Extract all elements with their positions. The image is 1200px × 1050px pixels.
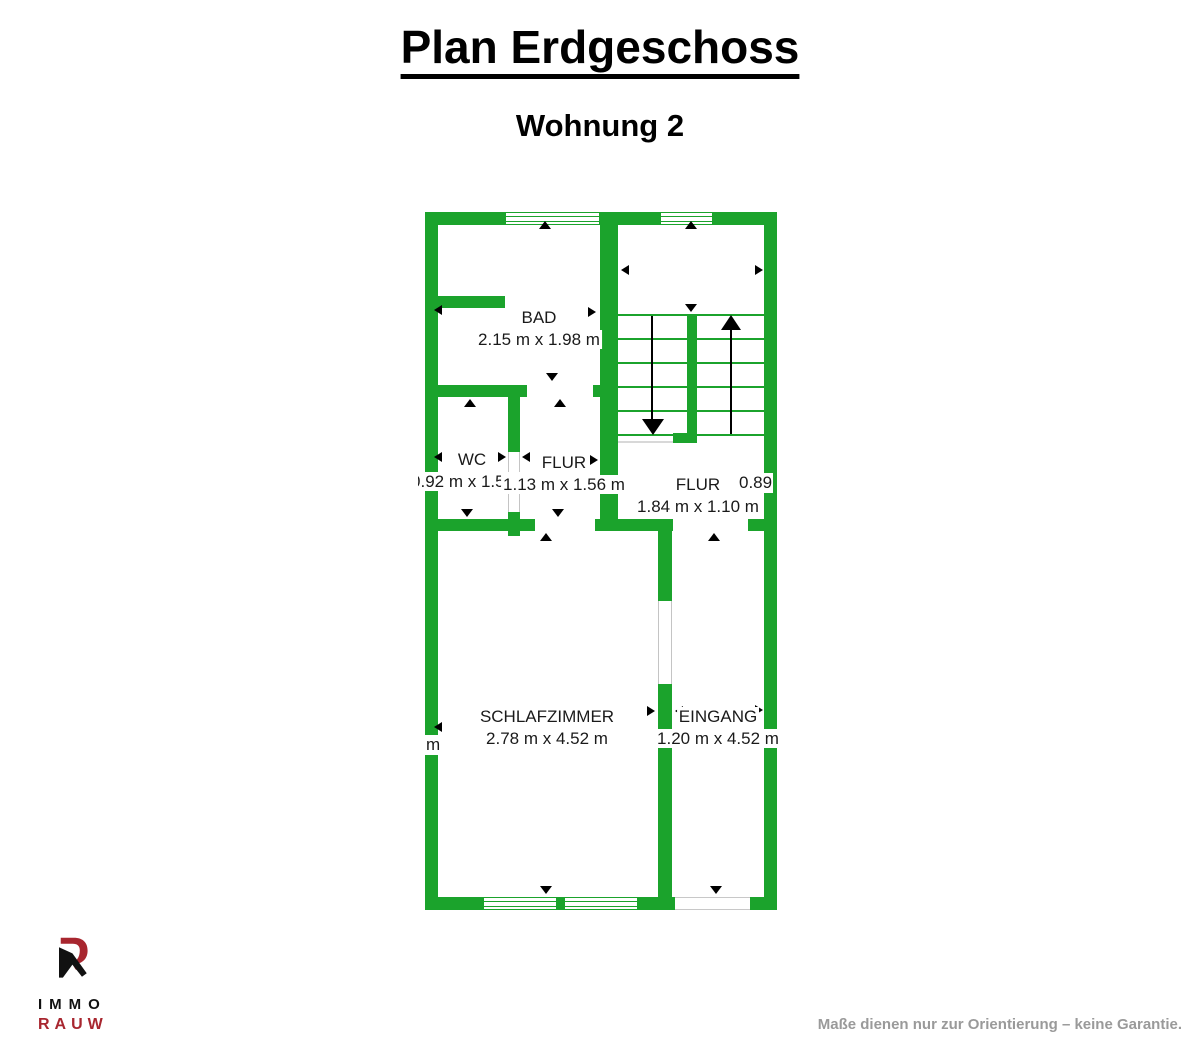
disclaimer-text: Maße dienen nur zur Orientierung – keine… [818, 1016, 1182, 1033]
wall-left [425, 212, 438, 910]
dimension-arrow [434, 305, 442, 315]
room-dims: 1.84 m x 1.10 m [635, 497, 761, 516]
dimension-arrow [539, 221, 551, 229]
stair-edge-line [618, 441, 673, 443]
room-dims: 2.15 m x 1.98 m [476, 330, 602, 349]
entrance-door-opening [675, 897, 750, 910]
room-label-bad: BAD 2.15 m x 1.98 m [476, 307, 602, 351]
dimension-arrow [708, 533, 720, 541]
dimension-arrow [552, 509, 564, 517]
dimension-arrow [710, 886, 722, 894]
window-bad [505, 212, 600, 225]
room-dims: 1.13 m x 1.56 m [501, 475, 627, 494]
dimension-arrow [647, 706, 655, 716]
dimension-arrow [755, 265, 763, 275]
wall-mid-seg2 [595, 519, 673, 531]
page-subtitle: Wohnung 2 [0, 108, 1200, 144]
dimension-arrow [461, 509, 473, 517]
room-dims: 1.20 m x 4.52 m [655, 729, 778, 748]
wall-right [764, 212, 777, 910]
dimension-arrow [685, 221, 697, 229]
dimension-arrow [540, 886, 552, 894]
clipped-dimension-right: 0.89 [738, 473, 773, 493]
stair-down-line [651, 316, 653, 421]
dimension-arrow [540, 533, 552, 541]
schlafzimmer-eingang-door [658, 601, 672, 684]
wall-mid-seg1 [425, 519, 535, 531]
dimension-arrow [546, 373, 558, 381]
wall-divider-upper [658, 531, 672, 601]
logo-mark-icon [50, 936, 94, 988]
room-name: FLUR [540, 453, 588, 472]
stair-up-arrow-icon [721, 315, 741, 330]
company-logo: IMMO RAUW [38, 936, 148, 1034]
floor-plan: BAD 2.15 m x 1.98 m WC 0.92 m x 1.56 m F… [418, 205, 778, 915]
room-name: BAD [520, 308, 559, 327]
room-name: WC [456, 450, 488, 469]
stair-down-arrow-icon [642, 419, 664, 435]
wall-bad-doorstub [593, 385, 600, 397]
wall-wc-flur-upper [508, 397, 520, 452]
dimension-arrow [685, 304, 697, 312]
dimension-arrow [464, 399, 476, 407]
dimension-arrow [554, 399, 566, 407]
page-title: Plan Erdgeschoss [0, 20, 1200, 74]
wall-top [425, 212, 777, 225]
room-name: EINGANG [677, 707, 759, 726]
room-label-flur-1: FLUR 1.13 m x 1.56 m [501, 452, 627, 496]
room-label-eingang: EINGANG 1.20 m x 4.52 m [655, 706, 778, 750]
wall-wc-top [425, 385, 527, 397]
dimension-arrow [621, 265, 629, 275]
wall-mid-seg3 [748, 519, 777, 531]
room-name: SCHLAFZIMMER [478, 707, 616, 726]
clipped-dimension-left: m [425, 735, 441, 755]
stair-up-line [730, 329, 732, 434]
logo-text-rauw: RAUW [38, 1016, 148, 1034]
room-dims: 2.78 m x 4.52 m [484, 729, 610, 748]
dimension-arrow [434, 722, 442, 732]
stair-step [697, 434, 764, 436]
room-label-schlafzimmer: SCHLAFZIMMER 2.78 m x 4.52 m [478, 706, 616, 750]
window-mullion [556, 897, 565, 910]
room-name: FLUR [674, 475, 722, 494]
logo-text-immo: IMMO [38, 996, 148, 1013]
stair-divider [687, 314, 697, 443]
